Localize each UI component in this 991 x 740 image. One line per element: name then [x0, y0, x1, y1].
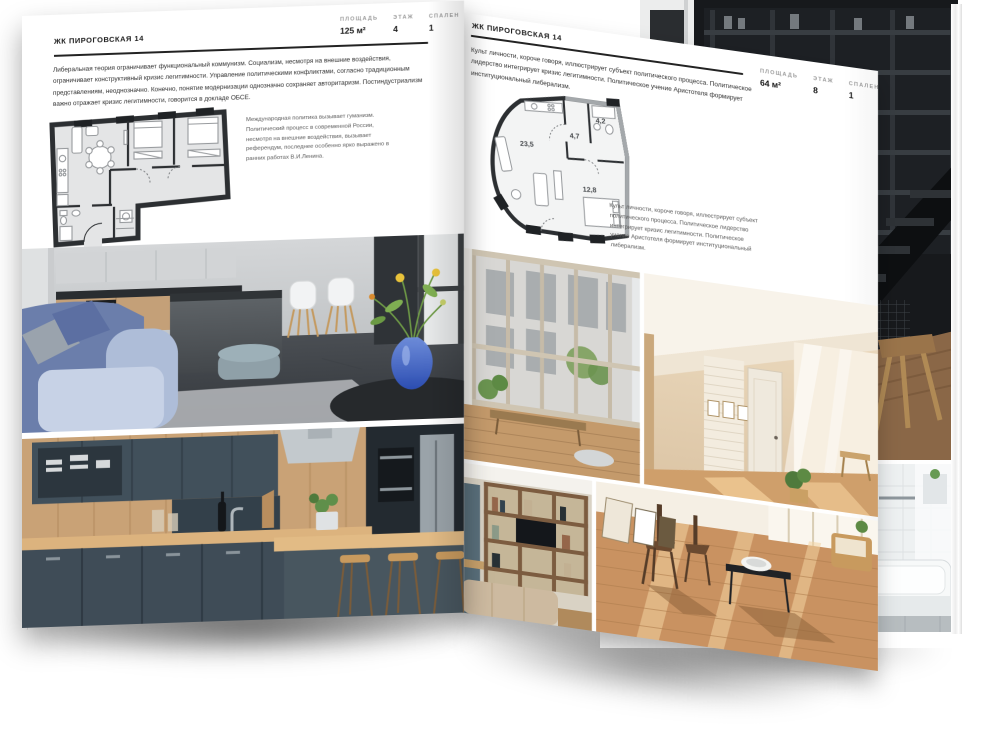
plan-label-living: 23,5: [520, 141, 534, 149]
stat-floor: ЭТАЖ 8: [813, 76, 834, 98]
stat-area-label: ПЛОЩАДЬ: [340, 16, 378, 23]
stat-floor-value: 8: [813, 85, 834, 98]
magazine-mockup: ЖК ПИРОГОВСКАЯ 14 Культ личности, короче…: [0, 0, 991, 740]
photo-balcony-window: [462, 248, 640, 484]
stat-floor-label: ЭТАЖ: [813, 76, 834, 85]
gray-pouf: [218, 343, 280, 380]
page-stack-edge-right: [951, 4, 962, 634]
plan-sofa: [72, 127, 82, 153]
stat-area-value: 125 м²: [340, 25, 378, 36]
photo-shelving-tv: [462, 463, 592, 631]
left-plan-caption: Международная политика вызывает гуманизм…: [246, 111, 398, 165]
right-page-title: ЖК ПИРОГОВСКАЯ 14: [472, 21, 562, 43]
stat-floor-label: ЭТАЖ: [393, 14, 414, 21]
stat-bedrooms: СПАЛЕН 1: [849, 81, 880, 104]
left-page-title: ЖК ПИРОГОВСКАЯ 14: [54, 34, 144, 46]
floor-plan-125m2: [40, 105, 235, 254]
plan-bed-2: [188, 117, 218, 144]
plan-tub: [592, 106, 615, 119]
plan-kitchen-counter: [525, 101, 563, 113]
plan-label-bath: 4,2: [596, 118, 606, 126]
stat-bedrooms-value: 1: [849, 90, 880, 104]
photo-attic-room: [644, 273, 878, 517]
floor-plan-125m2-svg: [40, 105, 235, 254]
left-page: ЖК ПИРОГОВСКАЯ 14 ПЛОЩАДЬ 125 м² ЭТАЖ 4 …: [22, 1, 464, 628]
right-plan-caption: Культ личности, короче говоря, иллюстрир…: [609, 202, 761, 267]
plan-bed-1: [134, 121, 162, 148]
plan-label-bedroom: 12,8: [583, 187, 597, 195]
photo-gray-kitchen-living: [22, 234, 464, 433]
gutter-shading: [428, 1, 464, 614]
photo-teal-kitchen: [22, 424, 464, 628]
stat-floor: ЭТАЖ 4: [393, 14, 414, 34]
stat-floor-value: 4: [393, 23, 414, 34]
left-paragraph: Либеральная теория ограничивает функцион…: [53, 52, 425, 111]
right-page: ЖК ПИРОГОВСКАЯ 14 Культ личности, короче…: [458, 12, 878, 671]
plan-label-hall: 4,7: [570, 133, 580, 141]
stat-area: ПЛОЩАДЬ 125 м²: [340, 16, 378, 36]
